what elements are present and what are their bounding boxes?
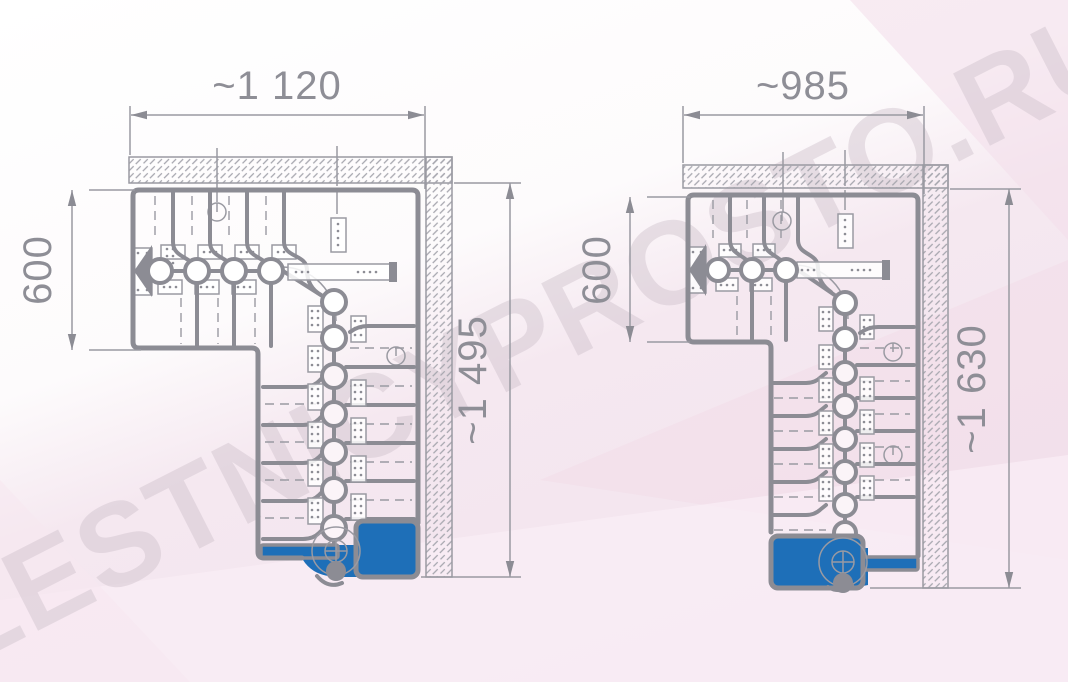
right-flight-width-dimension-label: 600 — [575, 235, 619, 305]
newel-post — [833, 573, 853, 593]
left-top-wall-hatch — [129, 157, 452, 183]
left-flight-width-dimension-label: 600 — [16, 235, 60, 305]
exit-strip — [861, 557, 918, 570]
right-right-wall-hatch — [923, 165, 948, 588]
drawing-sheet: LESTNICYPROSTO.RU — [0, 0, 1068, 682]
wall-bracket — [797, 262, 887, 278]
landing-platform — [356, 521, 418, 577]
left-right-wall-hatch — [426, 157, 452, 577]
newel-post — [326, 561, 346, 581]
right-height-dimension-label: ~1 630 — [950, 324, 994, 453]
wall-bracket — [288, 264, 396, 280]
left-width-dimension-label: ~1 120 — [212, 64, 341, 108]
staircase-plans-canvas: LESTNICYPROSTO.RU — [0, 0, 1068, 682]
right-width-dimension-label: ~985 — [756, 64, 850, 108]
left-height-dimension-label: ~1 495 — [451, 315, 495, 444]
right-top-wall-hatch — [683, 165, 948, 188]
